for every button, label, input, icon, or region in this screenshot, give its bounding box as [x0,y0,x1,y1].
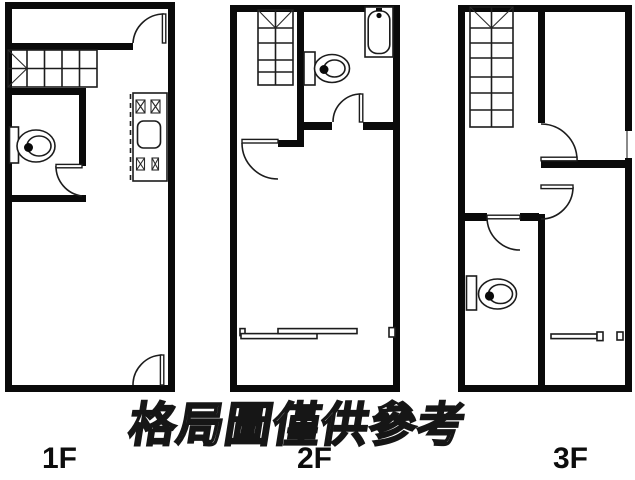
floor-plan-1f [5,2,175,392]
wall [230,5,237,392]
sliding-window-icon [240,328,395,339]
wall [5,195,86,202]
door-icon [333,94,363,122]
wall [458,5,465,392]
wall [5,88,86,95]
wall [458,385,632,392]
door-icon [133,355,164,385]
stairs-icon [258,10,293,85]
wall [168,2,175,392]
wall [278,140,304,147]
wall [363,122,393,130]
toilet-icon [467,276,517,310]
floor-label-3f: 3F [553,442,588,476]
wall [520,213,539,221]
wall [297,12,304,147]
floorplan-image: 格局圖僅供參考 1F 2F 3F [0,0,635,480]
floor-plan-3f [458,5,633,392]
sliding-window-icon [551,332,623,341]
door-icon [242,139,278,179]
bathtub-icon [365,7,393,57]
wall [304,122,332,130]
wall [5,2,175,9]
watermark-text: 格局圖僅供參考 [125,386,472,455]
door-icon [56,164,82,196]
door-icon [541,124,577,161]
door-icon [487,215,520,250]
door-icon [541,185,573,219]
toilet-icon [304,52,350,85]
floor-plan-2f [230,5,400,392]
kitchen-counter-icon [131,93,168,181]
wall [538,5,545,123]
wall [625,5,632,392]
stairs-icon [8,50,97,87]
toilet-icon [10,127,56,163]
wall [5,43,133,50]
wall [458,213,487,221]
stairs-icon [470,7,513,127]
floor-label-1f: 1F [42,442,77,476]
wall [79,88,86,166]
door-icon [133,14,166,43]
window-icon [624,131,633,158]
wall [538,214,545,385]
